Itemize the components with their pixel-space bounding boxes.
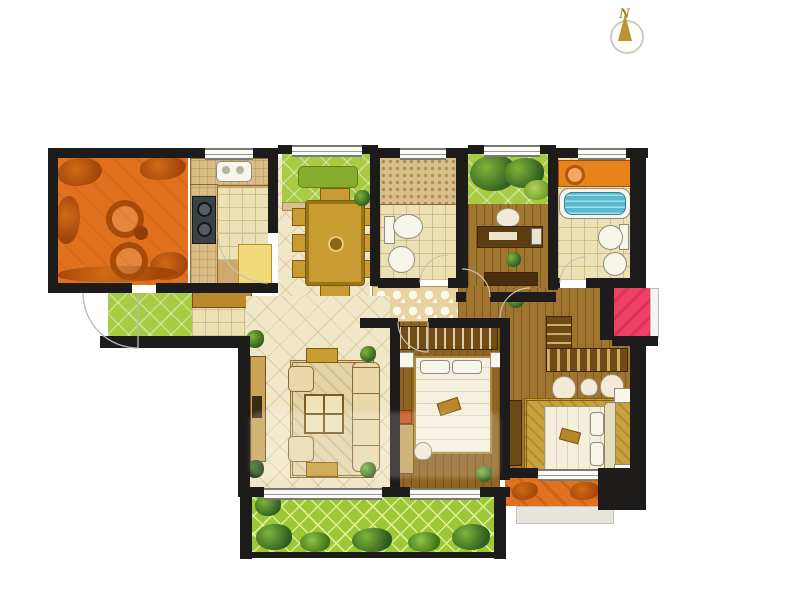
door-arcs: [0, 0, 800, 611]
watermark: [250, 412, 500, 478]
floor-plan-canvas: N: [0, 0, 800, 611]
